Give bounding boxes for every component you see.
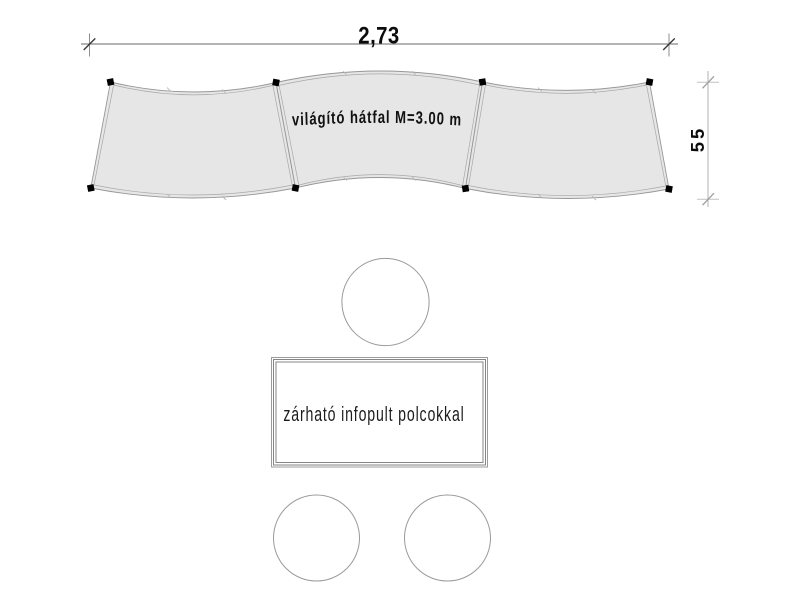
svg-text:2,73: 2,73 — [358, 22, 399, 49]
svg-text:55: 55 — [687, 129, 708, 153]
svg-text:zárható infopult polcokkal: zárható infopult polcokkal — [283, 402, 464, 425]
svg-text:világító hátfal M=3.00 m: világító hátfal M=3.00 m — [292, 108, 463, 130]
